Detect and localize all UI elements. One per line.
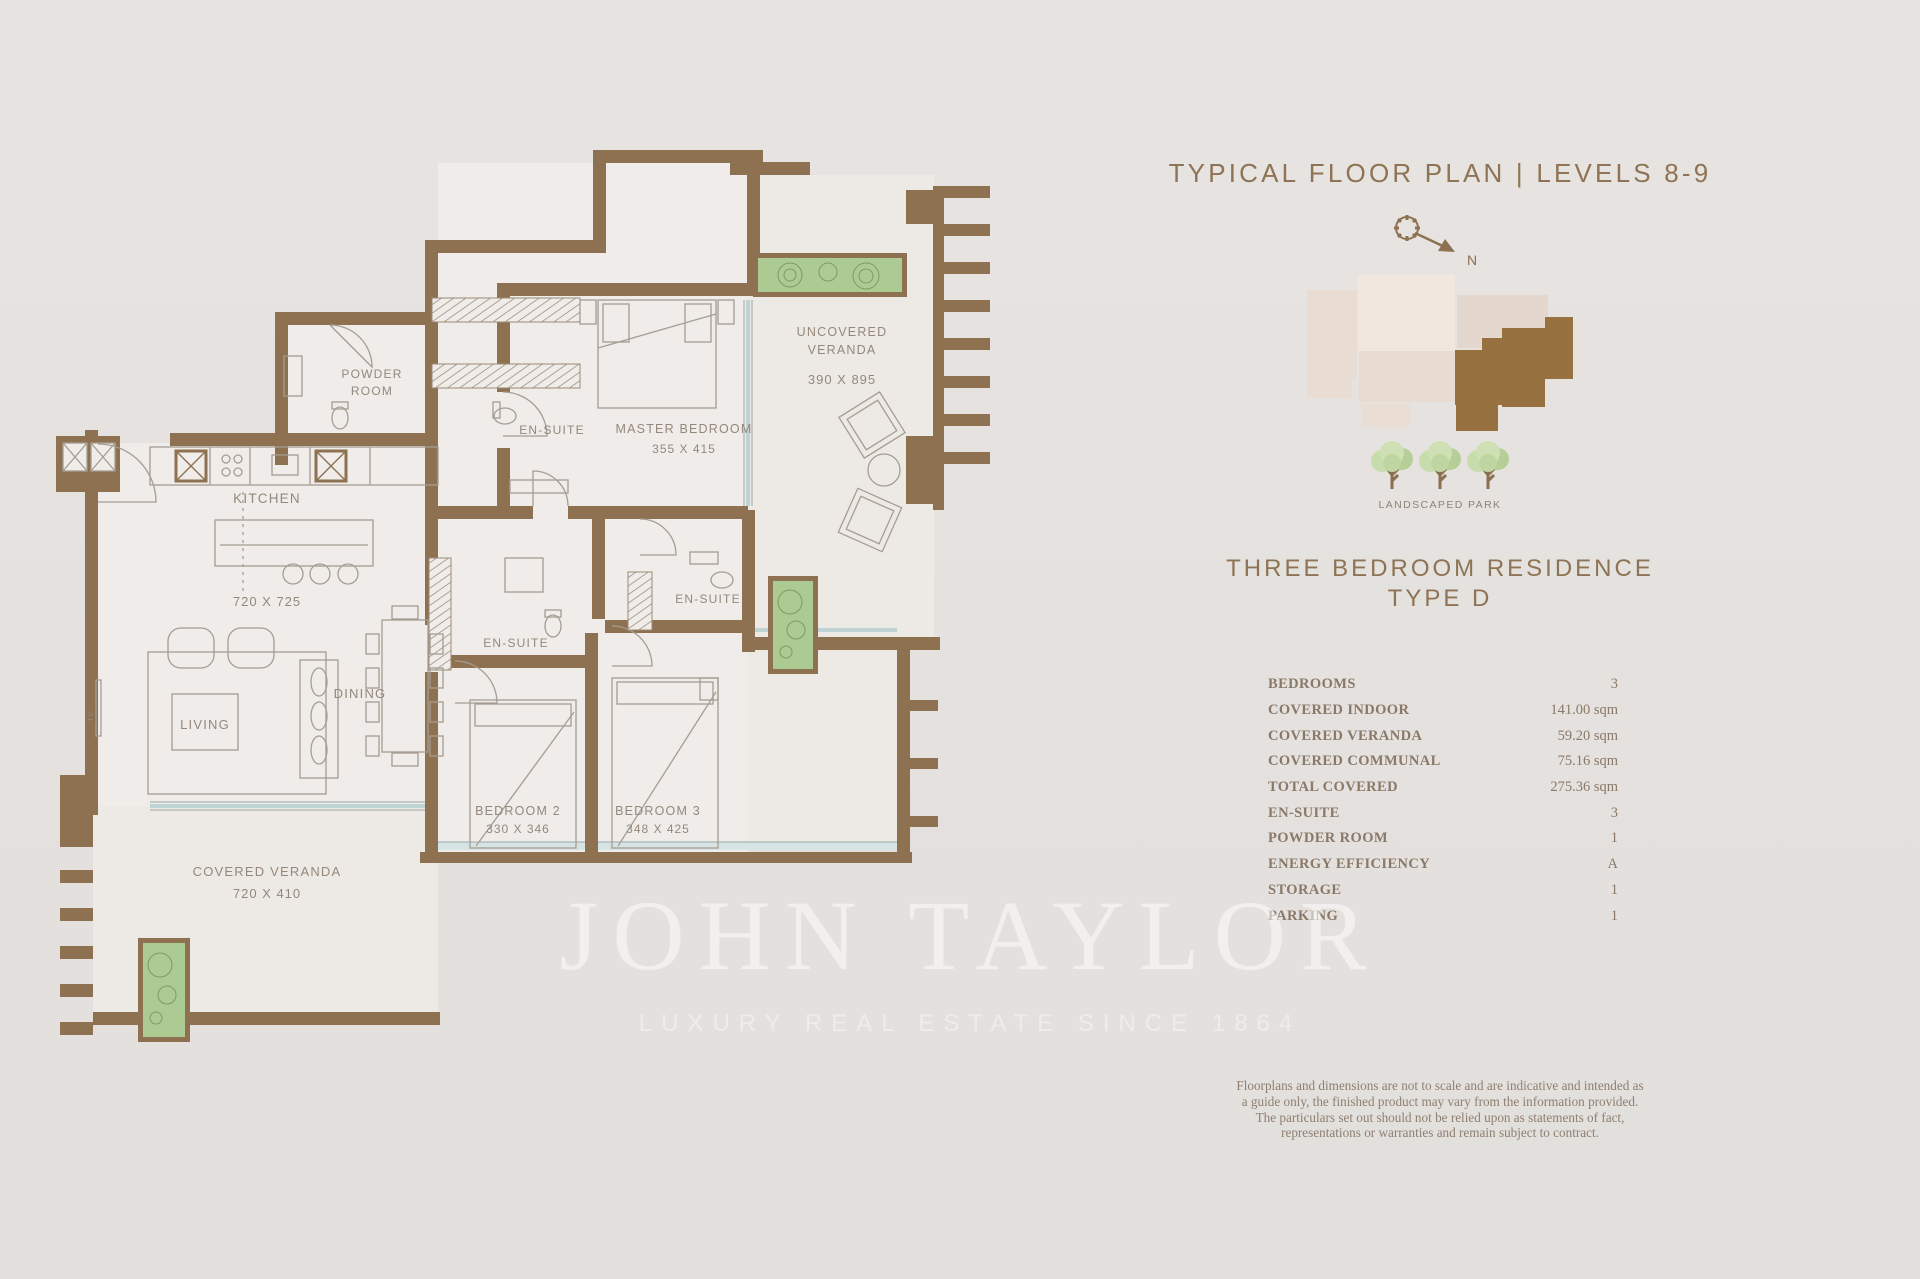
- table-row: TOTAL COVERED 275.36 sqm: [1268, 775, 1618, 801]
- powder-room-label: POWDER: [341, 367, 402, 381]
- uncovered-veranda-label: UNCOVERED: [797, 325, 888, 339]
- master-bedroom-label: MASTER BEDROOM: [616, 422, 753, 436]
- spec-value: 75.16 sqm: [1558, 753, 1618, 770]
- spec-value: 275.36 sqm: [1550, 779, 1618, 796]
- ensuite-bed3-label: EN-SUITE: [675, 592, 741, 606]
- tv-label: TV: [88, 710, 95, 721]
- spec-table: BEDROOMS 3 COVERED INDOOR 141.00 sqm COV…: [1268, 672, 1618, 929]
- compass-icon: N: [1394, 215, 1477, 268]
- spec-value: 141.00 sqm: [1550, 702, 1618, 719]
- living-label: LIVING: [180, 717, 230, 732]
- floorplan-brochure-page: { "header": { "title": "TYPICAL FLOOR PL…: [0, 0, 1920, 1279]
- table-row: PARKING 1: [1268, 903, 1618, 929]
- spec-value: 3: [1611, 676, 1618, 693]
- spec-value: 1: [1611, 830, 1618, 847]
- spec-value: 59.20 sqm: [1558, 728, 1618, 745]
- dining-label: DINING: [334, 686, 387, 701]
- table-row: COVERED VERANDA 59.20 sqm: [1268, 723, 1618, 749]
- spec-label: STORAGE: [1268, 882, 1341, 899]
- table-row: BEDROOMS 3: [1268, 672, 1618, 698]
- site-location-map: N: [1295, 205, 1595, 515]
- north-label: N: [1467, 252, 1477, 268]
- residence-heading: THREE BEDROOM RESIDENCE TYPE D: [1180, 554, 1700, 614]
- table-row: COVERED COMMUNAL 75.16 sqm: [1268, 749, 1618, 775]
- spec-value: A: [1608, 856, 1618, 873]
- page-title: TYPICAL FLOOR PLAN | LEVELS 8-9: [1150, 158, 1730, 189]
- uncovered-veranda-dim: 390 X 895: [808, 372, 876, 387]
- spec-label: ENERGY EFFICIENCY: [1268, 856, 1430, 873]
- bedroom3-dim: 348 X 425: [626, 822, 690, 836]
- ensuite-master-label: EN-SUITE: [519, 423, 585, 437]
- spec-label: EN-SUITE: [1268, 805, 1340, 822]
- spec-label: POWDER ROOM: [1268, 830, 1388, 847]
- tree-icon: [1371, 441, 1413, 489]
- bedroom2-dim: 330 X 346: [486, 822, 550, 836]
- kitchen-dim: 720 X 725: [233, 594, 301, 609]
- master-bedroom-dim: 355 X 415: [652, 442, 716, 456]
- spec-label: COVERED VERANDA: [1268, 728, 1422, 745]
- covered-veranda-dim: 720 X 410: [233, 886, 301, 901]
- spec-label: COVERED COMMUNAL: [1268, 753, 1441, 770]
- spec-value: 1: [1611, 908, 1618, 925]
- landscaped-park-label: LANDSCAPED PARK: [1290, 499, 1590, 511]
- uncovered-veranda-label2: VERANDA: [808, 343, 877, 357]
- covered-veranda-label: COVERED VERANDA: [193, 864, 342, 879]
- residence-heading-line2: TYPE D: [1180, 584, 1700, 614]
- disclaimer-text: Floorplans and dimensions are not to sca…: [1236, 1078, 1644, 1141]
- ensuite-bed2-label: EN-SUITE: [483, 636, 549, 650]
- spec-label: BEDROOMS: [1268, 676, 1356, 693]
- table-row: ENERGY EFFICIENCY A: [1268, 852, 1618, 878]
- table-row: STORAGE 1: [1268, 878, 1618, 904]
- tree-icon: [1419, 441, 1461, 489]
- spec-label: PARKING: [1268, 908, 1338, 925]
- powder-room-label2: ROOM: [351, 384, 393, 398]
- spec-label: COVERED INDOOR: [1268, 702, 1409, 719]
- bedroom2-label: BEDROOM 2: [475, 804, 561, 818]
- spec-label: TOTAL COVERED: [1268, 779, 1398, 796]
- table-row: POWDER ROOM 1: [1268, 826, 1618, 852]
- tree-icon: [1467, 441, 1509, 489]
- park-trees: [1371, 441, 1509, 489]
- spec-value: 1: [1611, 882, 1618, 899]
- spec-value: 3: [1611, 805, 1618, 822]
- bedroom3-label: BEDROOM 3: [615, 804, 701, 818]
- table-row: EN-SUITE 3: [1268, 800, 1618, 826]
- floor-plan-drawing: POWDER ROOM KITCHEN 720 X 725 LIVING DIN…: [0, 0, 1000, 1279]
- residence-heading-line1: THREE BEDROOM RESIDENCE: [1180, 554, 1700, 584]
- site-buildings: [1307, 275, 1573, 431]
- kitchen-label: KITCHEN: [233, 491, 301, 506]
- table-row: COVERED INDOOR 141.00 sqm: [1268, 698, 1618, 724]
